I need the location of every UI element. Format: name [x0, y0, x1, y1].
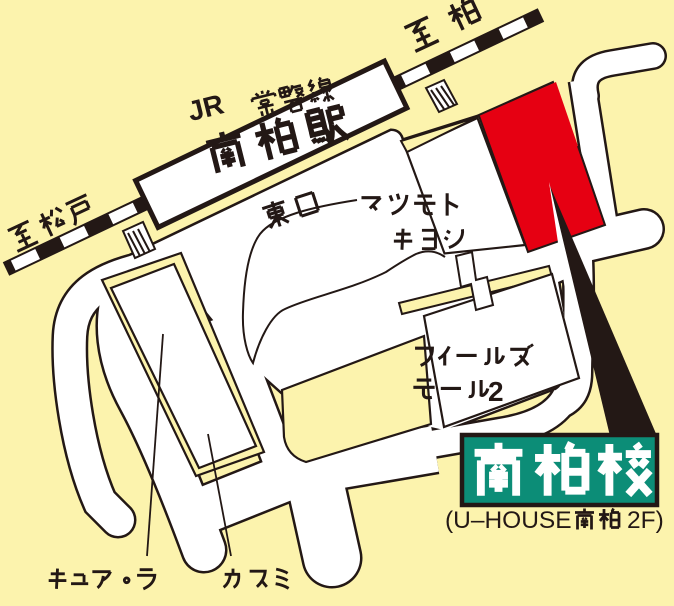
- svg-text:2: 2: [488, 376, 504, 407]
- svg-text:2F): 2F): [627, 507, 664, 534]
- svg-text:(U–HOUSE: (U–HOUSE: [445, 507, 572, 534]
